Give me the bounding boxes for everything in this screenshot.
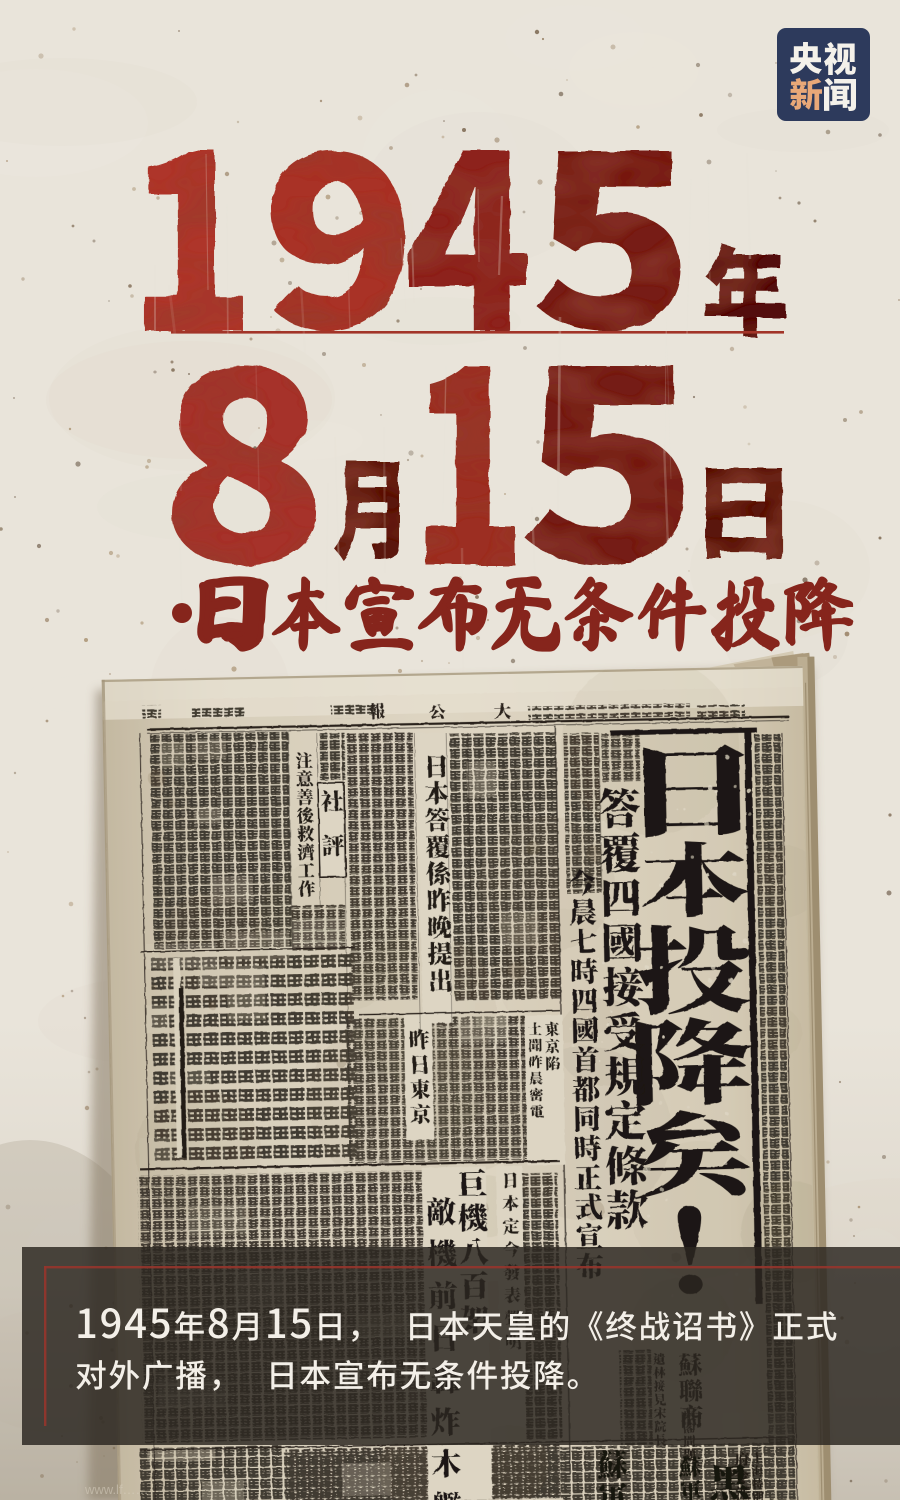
svg-text:www.lf……: www.lf…… <box>84 1482 149 1497</box>
